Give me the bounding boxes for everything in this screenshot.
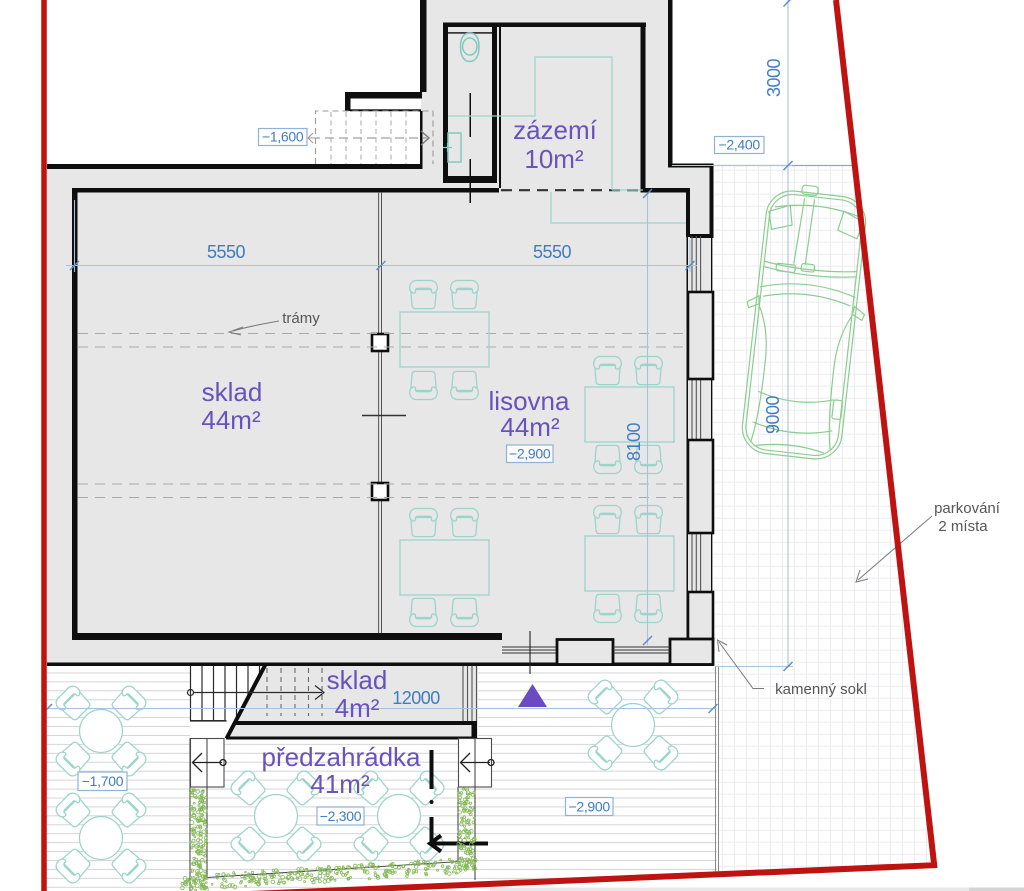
svg-text:kamenný sokl: kamenný sokl bbox=[775, 681, 867, 698]
svg-text:−2,400: −2,400 bbox=[718, 137, 760, 153]
svg-text:−1,700: −1,700 bbox=[82, 773, 124, 789]
svg-text:2 místa: 2 místa bbox=[938, 518, 988, 535]
svg-text:sklad: sklad bbox=[327, 665, 388, 695]
svg-text:9000: 9000 bbox=[763, 395, 783, 434]
svg-text:trámy: trámy bbox=[282, 310, 320, 327]
svg-text:předzahrádka: předzahrádka bbox=[262, 742, 422, 772]
svg-text:−1,600: −1,600 bbox=[262, 129, 304, 145]
svg-text:−2,300: −2,300 bbox=[320, 808, 362, 824]
svg-text:8100: 8100 bbox=[624, 422, 644, 461]
svg-text:−2,900: −2,900 bbox=[568, 798, 610, 814]
svg-text:parkování: parkování bbox=[934, 500, 1001, 517]
svg-text:5550: 5550 bbox=[207, 242, 246, 262]
svg-text:sklad: sklad bbox=[202, 377, 263, 407]
svg-text:12000: 12000 bbox=[392, 688, 440, 708]
svg-text:44m²: 44m² bbox=[500, 412, 560, 442]
svg-text:41m²: 41m² bbox=[310, 769, 370, 799]
svg-text:3000: 3000 bbox=[764, 58, 784, 97]
svg-text:5550: 5550 bbox=[533, 242, 572, 262]
svg-text:4m²: 4m² bbox=[335, 693, 380, 723]
svg-text:−2,900: −2,900 bbox=[509, 446, 551, 462]
svg-text:44m²: 44m² bbox=[201, 405, 261, 435]
svg-text:zázemí: zázemí bbox=[513, 115, 598, 145]
svg-text:10m²: 10m² bbox=[524, 144, 584, 174]
